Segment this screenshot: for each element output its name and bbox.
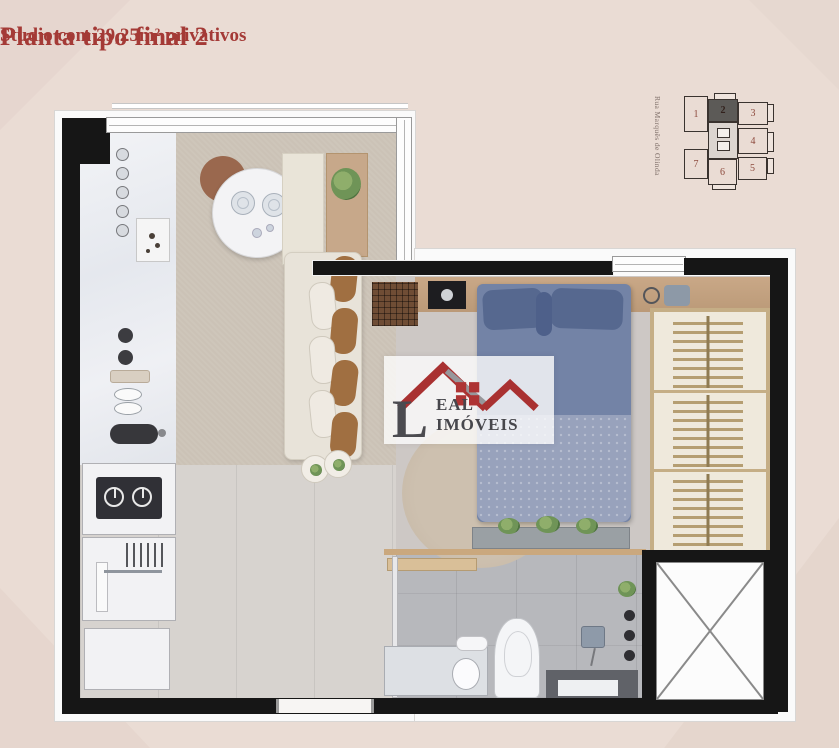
elevator-shaft bbox=[656, 562, 764, 700]
unit-number: 3 bbox=[751, 108, 756, 119]
closet-section-hangers bbox=[658, 474, 758, 546]
bed-pillow bbox=[482, 287, 544, 330]
brand-initial: L bbox=[392, 395, 428, 444]
kitchen-accessory bbox=[118, 328, 133, 343]
stove-knob bbox=[116, 224, 129, 237]
bed-bolster bbox=[536, 292, 552, 336]
counter-appliance bbox=[664, 285, 690, 306]
glass bbox=[266, 224, 274, 232]
wall-left bbox=[62, 120, 80, 712]
keyplan-elevator bbox=[717, 141, 730, 151]
keyplan-unit-2-highlighted: 2 bbox=[708, 99, 738, 122]
planter-plant bbox=[576, 518, 598, 534]
kitchen-counter-marble bbox=[80, 133, 176, 465]
keyplan-balcony bbox=[767, 104, 774, 122]
dish-stack bbox=[114, 402, 142, 415]
closet-section-hangers bbox=[658, 316, 758, 388]
dish-stack bbox=[114, 388, 142, 401]
unit-number: 7 bbox=[694, 159, 699, 170]
unit-number: 2 bbox=[721, 105, 726, 116]
keyplan: 1 2 3 4 5 6 7 bbox=[672, 92, 778, 192]
kitchen-tray bbox=[110, 370, 150, 383]
street-label: Rua Marquês de Olinda bbox=[653, 96, 662, 192]
washbasin bbox=[452, 658, 480, 690]
wardrobe-closet bbox=[650, 308, 770, 555]
keyplan-core bbox=[708, 122, 738, 159]
place-setting bbox=[231, 191, 255, 215]
stove-knob bbox=[116, 186, 129, 199]
plan-subtitle: Studio com 29,25m² privativos bbox=[0, 25, 246, 47]
pouf-with-plant bbox=[324, 450, 352, 478]
tv bbox=[428, 281, 466, 309]
entry-door-opening bbox=[276, 699, 374, 713]
stove-knob bbox=[116, 167, 129, 180]
kitchen-sink bbox=[110, 424, 158, 444]
bathroom-plant bbox=[618, 581, 636, 597]
toilet bbox=[494, 618, 540, 698]
vent-grille bbox=[126, 543, 166, 567]
floor-plan-page: Planta tipo final 2 Studio com 29,25m² p… bbox=[0, 0, 839, 748]
closet-shelf-divider bbox=[654, 469, 766, 472]
closet-section-hangers bbox=[658, 395, 758, 467]
stove-knob bbox=[116, 205, 129, 218]
shower-mixer bbox=[581, 626, 605, 648]
facade-edge-line bbox=[112, 103, 408, 109]
burner bbox=[132, 487, 152, 507]
planter-plant bbox=[498, 518, 520, 534]
bed-pillow bbox=[550, 288, 623, 330]
keyplan-unit-4: 4 bbox=[738, 128, 768, 154]
wall-rack bbox=[372, 282, 418, 326]
shower-control bbox=[624, 650, 635, 661]
unit-number: 1 bbox=[694, 109, 699, 120]
bench-cabinet bbox=[282, 153, 324, 265]
wall-bedroom-divider bbox=[312, 260, 614, 276]
shower-control bbox=[624, 630, 635, 641]
burner bbox=[104, 487, 124, 507]
potted-plant bbox=[331, 168, 361, 200]
watermark-logo: L EAL IMÓVEIS bbox=[384, 356, 554, 444]
window-top bbox=[106, 117, 400, 133]
window-bedroom bbox=[612, 256, 686, 272]
glass bbox=[252, 228, 262, 238]
keyplan-elevator bbox=[717, 128, 730, 138]
bath-mat bbox=[558, 680, 618, 696]
shaft-cross-icon bbox=[657, 563, 763, 699]
unit-number: 6 bbox=[720, 167, 725, 178]
keyplan-balcony bbox=[767, 158, 774, 174]
refrigerator bbox=[84, 628, 170, 690]
keyplan-unit-7: 7 bbox=[684, 149, 708, 179]
keyplan-unit-5: 5 bbox=[738, 157, 767, 180]
sliding-door bbox=[387, 558, 477, 571]
keyplan-unit-3: 3 bbox=[738, 102, 768, 125]
corner-shade-top-right bbox=[749, 0, 839, 90]
window-living-right bbox=[396, 117, 412, 263]
cutting-board bbox=[136, 218, 170, 262]
shower-control bbox=[624, 610, 635, 621]
unit-number: 4 bbox=[751, 136, 756, 147]
unit-number: 5 bbox=[750, 163, 755, 174]
counter-sink bbox=[643, 287, 660, 304]
keyplan-balcony bbox=[767, 132, 774, 152]
closet-shelf-divider bbox=[654, 390, 766, 393]
wall-top-left-corner bbox=[62, 118, 110, 164]
keyplan-unit-1: 1 bbox=[684, 96, 708, 132]
keyplan-unit-6: 6 bbox=[708, 159, 737, 185]
stove-knob bbox=[116, 148, 129, 161]
cabinet-handle bbox=[104, 570, 162, 573]
kitchen-accessory bbox=[118, 350, 133, 365]
towel-stack bbox=[456, 636, 488, 651]
brand-name: EAL IMÓVEIS bbox=[436, 395, 554, 435]
sliding-door-track bbox=[384, 549, 646, 555]
planter-plant bbox=[536, 516, 560, 533]
